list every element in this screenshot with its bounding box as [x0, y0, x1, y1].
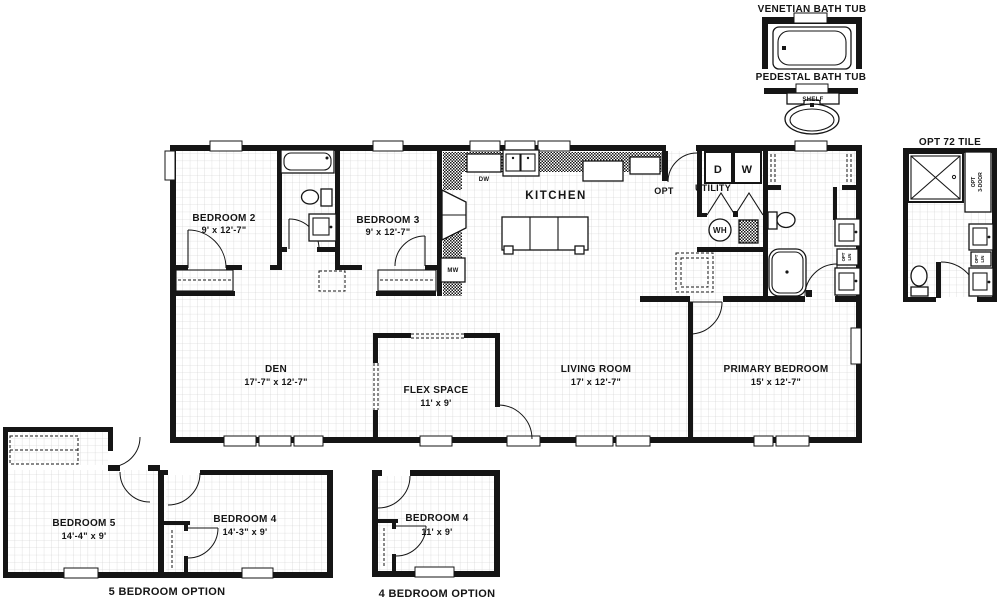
primary-name: PRIMARY BEDROOM: [723, 364, 828, 375]
venetian-tub-icon: [773, 27, 851, 69]
flex-dims: 11' x 9': [420, 398, 451, 408]
cabinet-run: [443, 152, 462, 190]
bedroom2-dims: 9' x 12'-7": [202, 225, 247, 235]
microwave-label: MW: [447, 268, 458, 274]
five-bedroom-option-caption: 5 BEDROOM OPTION: [109, 586, 226, 598]
range-icon: [583, 161, 623, 181]
vanity-sink-icon: [309, 214, 336, 241]
den-name: DEN: [265, 364, 287, 375]
bedroom2-name: BEDROOM 2: [192, 213, 255, 224]
opt-lin-label: OPT: [841, 252, 846, 261]
option5-entry-arc: [110, 437, 140, 467]
pedestal-tub-label: PEDESTAL BATH TUB: [756, 72, 867, 83]
kitchen-name: KITCHEN: [525, 190, 587, 202]
opt-72-tile-label: OPT 72 TILE: [919, 137, 981, 148]
opt-3door-label: OPT: [971, 177, 977, 187]
kitchen-sink-icon: [503, 150, 539, 176]
tub-icon: [281, 150, 334, 173]
cabinet-run: [443, 282, 462, 296]
opt-lin-label: LIN: [847, 254, 852, 261]
bedroom4-4br-dims: 11' x 9': [421, 527, 452, 537]
water-heater-label: WH: [713, 226, 727, 235]
shower-icon: [908, 153, 963, 202]
living-dims: 17' x 12'-7": [571, 377, 621, 387]
bedroom5-name: BEDROOM 5: [52, 518, 115, 529]
toilet-icon: [911, 266, 928, 296]
toilet-icon: [768, 212, 795, 229]
four-bedroom-option-caption: 4 BEDROOM OPTION: [379, 588, 496, 600]
floor-plan-sheet: VENETIAN BATH TUB PEDESTAL BATH TUB SHEL…: [0, 0, 1000, 600]
shower-icon: [769, 249, 806, 296]
dishwasher-icon: [467, 154, 501, 172]
dryer-label: D: [714, 164, 722, 176]
opt-lin-label: OPT: [974, 254, 979, 263]
opt-3door-label: 3-DOOR: [978, 172, 984, 192]
opt-lin-label: LIN: [980, 256, 985, 263]
bedroom3-dims: 9' x 12'-7": [366, 227, 411, 237]
vanity-sink-icon: [969, 224, 993, 250]
bedroom5-dims: 14'-4" x 9': [62, 531, 107, 541]
bedroom4-5br-name: BEDROOM 4: [213, 514, 276, 525]
bedroom4-4br-name: BEDROOM 4: [405, 513, 468, 524]
venetian-tub-label: VENETIAN BATH TUB: [758, 4, 867, 15]
utility-name: UTILITY: [695, 183, 731, 193]
kitchen-island: [502, 217, 588, 254]
vanity-sink-icon: [969, 268, 993, 296]
flex-name: FLEX SPACE: [403, 385, 468, 396]
furnace-icon: [739, 220, 758, 243]
dishwasher-label: DW: [479, 177, 490, 183]
den-dims: 17'-7" x 12'-7": [244, 377, 307, 387]
fridge-icon: [630, 157, 660, 174]
washer-label: W: [742, 164, 753, 176]
primary-dims: 15' x 12'-7": [751, 377, 801, 387]
shelf-label: SHELF: [802, 97, 823, 103]
floor-plan-drawing: VENETIAN BATH TUB PEDESTAL BATH TUB SHEL…: [0, 0, 1000, 600]
bedroom4-5br-dims: 14'-3" x 9': [223, 527, 268, 537]
vanity-sink-icon: [835, 219, 860, 246]
vanity-sink-icon: [835, 268, 860, 295]
bedroom3-name: BEDROOM 3: [356, 215, 419, 226]
living-name: LIVING ROOM: [561, 364, 632, 375]
opt-door-label: OPT: [654, 186, 674, 196]
